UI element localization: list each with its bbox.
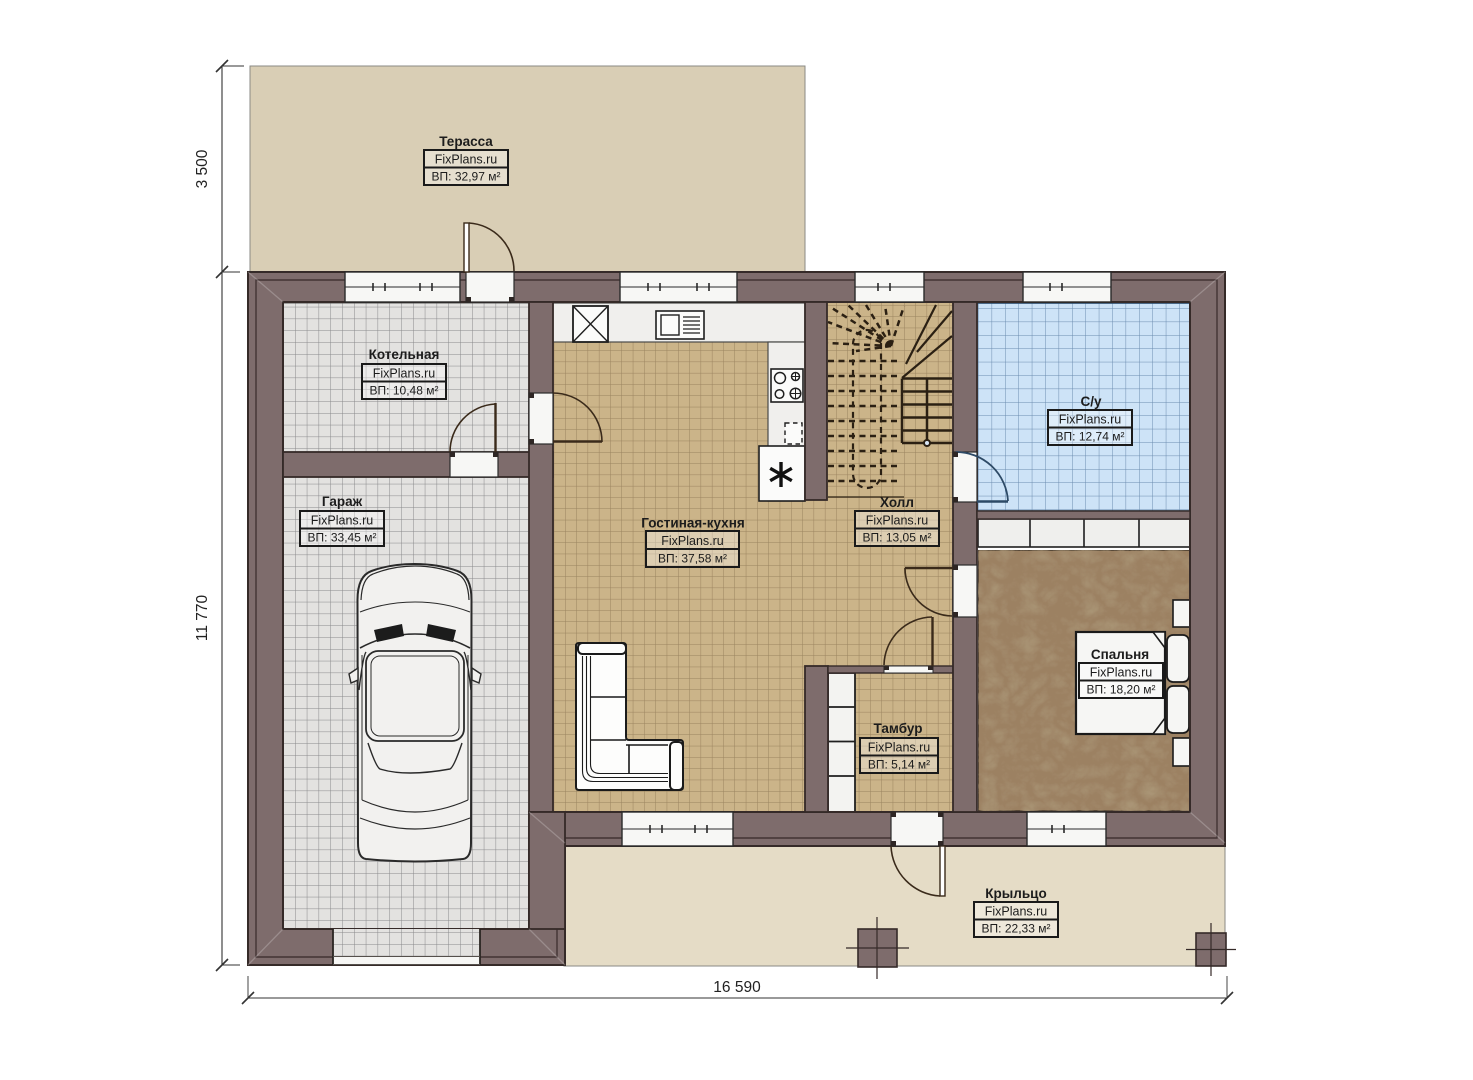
svg-text:ВП: 13,05 м²: ВП: 13,05 м² [863, 531, 932, 545]
svg-text:С/у: С/у [1080, 394, 1102, 409]
svg-text:16 590: 16 590 [713, 979, 761, 996]
svg-text:ВП: 18,20 м²: ВП: 18,20 м² [1087, 683, 1156, 697]
svg-text:FixPlans.ru: FixPlans.ru [435, 153, 498, 167]
svg-text:FixPlans.ru: FixPlans.ru [1059, 413, 1122, 427]
svg-text:Тамбур: Тамбур [874, 721, 923, 736]
svg-text:3 500: 3 500 [194, 149, 211, 188]
svg-text:Гараж: Гараж [322, 494, 363, 509]
svg-text:ВП: 32,97 м²: ВП: 32,97 м² [432, 170, 501, 184]
svg-text:FixPlans.ru: FixPlans.ru [866, 514, 929, 528]
svg-text:ВП: 22,33 м²: ВП: 22,33 м² [982, 922, 1051, 936]
svg-text:Терасса: Терасса [439, 134, 493, 149]
svg-text:11 770: 11 770 [194, 594, 211, 641]
svg-text:FixPlans.ru: FixPlans.ru [373, 367, 436, 381]
svg-text:FixPlans.ru: FixPlans.ru [985, 905, 1048, 919]
svg-text:ВП: 5,14 м²: ВП: 5,14 м² [868, 758, 930, 772]
svg-text:Спальня: Спальня [1091, 647, 1149, 662]
svg-text:Холл: Холл [880, 495, 914, 510]
svg-text:Гостиная-кухня: Гостиная-кухня [641, 516, 744, 531]
svg-text:FixPlans.ru: FixPlans.ru [661, 534, 724, 548]
svg-text:ВП: 33,45 м²: ВП: 33,45 м² [308, 531, 377, 545]
svg-text:ВП: 37,58 м²: ВП: 37,58 м² [658, 552, 727, 566]
svg-text:FixPlans.ru: FixPlans.ru [311, 514, 374, 528]
svg-text:FixPlans.ru: FixPlans.ru [868, 741, 931, 755]
svg-text:ВП: 12,74 м²: ВП: 12,74 м² [1056, 430, 1125, 444]
svg-text:Котельная: Котельная [369, 347, 440, 362]
svg-text:ВП: 10,48 м²: ВП: 10,48 м² [370, 384, 439, 398]
svg-text:Крыльцо: Крыльцо [985, 886, 1046, 901]
svg-text:FixPlans.ru: FixPlans.ru [1090, 666, 1153, 680]
